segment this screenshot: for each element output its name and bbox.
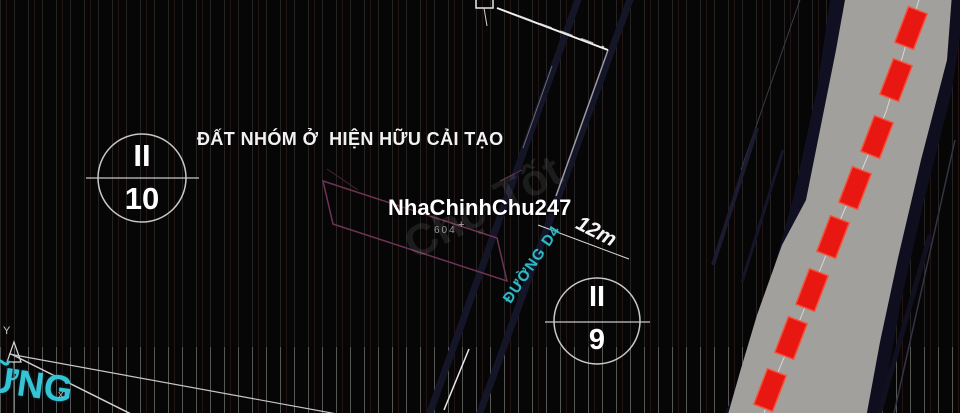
zone-marker-ii9-number: 9 [557,324,637,357]
brand-watermark: NhaChinhChu247 [388,195,571,221]
zone-title: ĐẤT NHÓM Ở HIỆN HỮU CẢI TẠO [197,129,503,150]
y-axis-arrow-icon [7,342,21,362]
cadastral-map: Chợ Tốt ĐẤT NHÓM Ở HIỆN HỮU CẢI TẠO NhaC… [0,0,960,413]
survey-boundary-top [476,0,608,50]
zone-marker-ii9-group: II [557,281,637,314]
plus-marker-icon: + [458,219,464,231]
zone-marker-ii10-group: II [102,138,182,174]
y-axis-label: Y [3,325,10,337]
boundary-x-marker: x [58,389,64,401]
zone-marker-ii10-number: 10 [102,181,182,217]
parcel-number: 604 [434,225,457,236]
